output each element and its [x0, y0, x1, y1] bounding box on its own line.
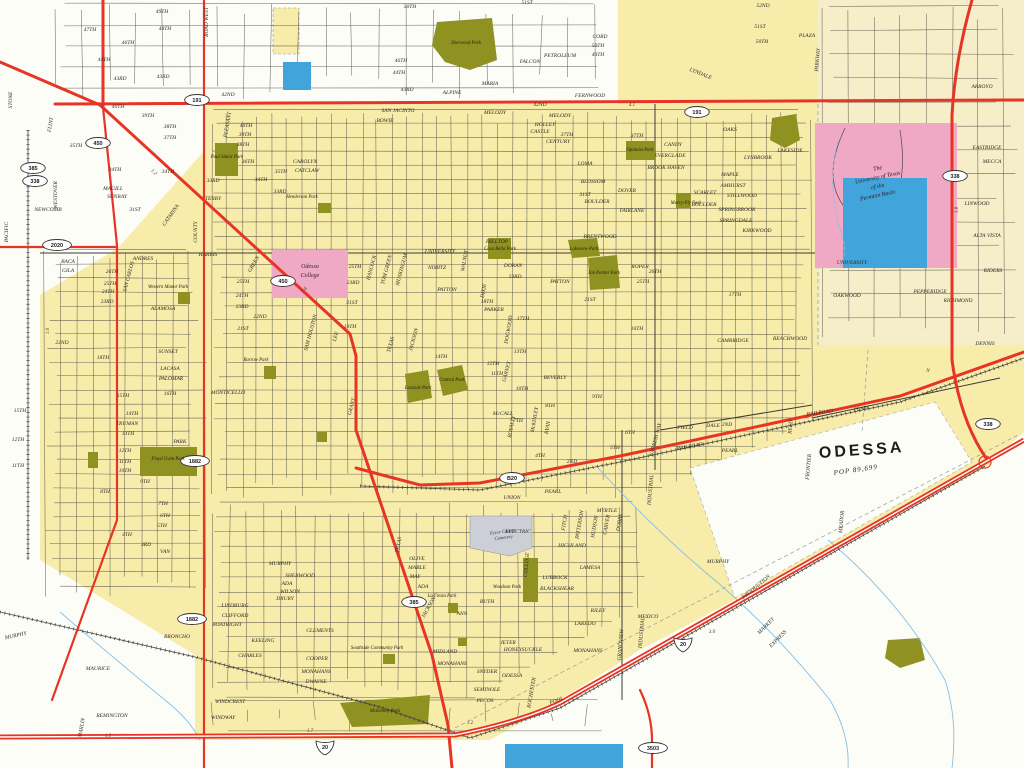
street-label: 6TH [625, 430, 636, 436]
western-manor-park-label: Western Manor Park [148, 285, 189, 290]
street-label: MELODY [483, 110, 507, 116]
street-label: 12TH [119, 448, 133, 454]
street-label: RUTH [479, 599, 495, 605]
street-label: 1.7 [307, 729, 314, 734]
street-label: SCARLET [694, 190, 718, 196]
street-label: 23RD [347, 280, 360, 286]
street-label: CENTURY [546, 139, 571, 145]
street-label: BLACKSHEAR [540, 586, 575, 592]
optimist-park-label: Optimist Park [626, 148, 654, 153]
street-label: 7TH [158, 501, 169, 507]
street-label: 25TH [349, 264, 363, 270]
park-small-1 [458, 638, 467, 646]
street-label: ROPER [630, 264, 649, 270]
street-label: 38TH [163, 124, 178, 130]
street-label: COUNTY [193, 220, 199, 242]
street-label: 17TH [517, 316, 531, 322]
street-label: 39TH [141, 113, 156, 119]
street-label: BACA [61, 259, 75, 265]
street-label: 25TH [237, 279, 251, 285]
street-label: MEXICO [637, 614, 659, 620]
street-label: MYRTLE [596, 508, 618, 514]
street-label: LAKESIDE [776, 148, 803, 154]
street-label: PATTON [436, 287, 457, 293]
street-label: 1.5 [105, 734, 112, 739]
street-label: WESTOVER [53, 181, 59, 209]
street-label: BEACHWOOD [773, 336, 807, 342]
street-label: 22ND [55, 340, 68, 346]
street-label: MURPHY [706, 559, 730, 565]
street-label: LACASA [159, 366, 180, 372]
street-label: 33RD [273, 189, 287, 195]
street-label: DORAN [503, 263, 523, 269]
street-label: 38TH [236, 142, 251, 148]
street-label: 5TH [157, 523, 168, 529]
street-label: 15TH [14, 408, 28, 414]
street-label: 2ND [567, 459, 577, 465]
street-label: MIDLAND [432, 649, 457, 655]
street-label: N [925, 369, 930, 374]
street-label: 50TH [404, 4, 418, 10]
street-label: 23RD [236, 304, 249, 310]
street-label: NIMITZ [427, 265, 447, 271]
street-label: LINWOOD [963, 201, 989, 207]
jim-parker-park-label: Jim Parker Park [588, 271, 621, 276]
route-shield-label-3503: 3503 [647, 746, 659, 752]
urban-patch-topleft [273, 8, 299, 54]
street-label: TRUMAN [116, 421, 138, 427]
street-label: 34TH [161, 168, 176, 175]
street-label: HOLLEY [534, 122, 556, 128]
street-label: ANN [456, 611, 468, 617]
street-label: RILEY [590, 608, 607, 614]
street-label: 39TH [238, 132, 253, 138]
route-shield-label-191: 191 [692, 110, 701, 116]
street-label: MONAHANS [572, 648, 603, 654]
street-label: PEARL [721, 448, 739, 454]
street-label: 21ST [237, 326, 249, 332]
street-label: RIDERS [983, 268, 1003, 274]
street-label: REMINGTON [95, 713, 128, 719]
street-label: 51ST [521, 0, 533, 6]
street-label: 23RD [101, 299, 114, 305]
street-label: DRURY [275, 596, 295, 602]
street-label: 48TH [159, 25, 173, 32]
street-label: GILA [62, 268, 75, 274]
street-label: DWAYNE [304, 679, 327, 685]
street-label: MAPLE [720, 172, 739, 178]
street-label: 26TH [106, 269, 120, 275]
street-label: VAN [160, 549, 170, 555]
street-label: 1.8 [955, 206, 960, 213]
street-label: LAREDO [573, 621, 595, 627]
street-label: DOVER [617, 188, 637, 194]
street-label: PLAZA [798, 33, 816, 39]
street-label: MURPHY [268, 561, 292, 567]
odessa-college-label-line: Odessa [301, 264, 319, 270]
urban-area-top [618, 0, 818, 104]
street-label: 11TH [12, 463, 25, 469]
odessa-college-label-line: College [301, 273, 320, 279]
street-label: BEVERLY [544, 375, 568, 381]
street-label: OAKWOOD [833, 293, 861, 299]
route-shield-label-450: 450 [278, 279, 287, 285]
street-label: 9TH [592, 394, 603, 400]
street-label: WINDCREST [215, 699, 246, 705]
street-label: 14TH [126, 410, 140, 417]
street-label: 10TH [516, 386, 530, 392]
street-label: CASTLE [530, 129, 550, 135]
street-label: 52ND [756, 3, 769, 9]
street-label: BOULDER [584, 199, 610, 205]
street-label: LAMESA [579, 565, 601, 571]
street-label: CAMBRIDGE [717, 338, 749, 344]
street-label: 35TH [69, 143, 84, 149]
street-label: SAN JACINTO [381, 108, 414, 114]
street-label: 46TH [122, 39, 136, 46]
street-label: MAY [409, 574, 422, 580]
street-label: ANDRES [132, 256, 154, 262]
street-label: CORD [593, 34, 608, 40]
lake-south [505, 744, 623, 768]
street-label: 13TH [514, 349, 528, 355]
street-label: 43RD [401, 86, 414, 93]
woodson-park-label: Woodson Park [493, 585, 522, 590]
route-shield-label-385: 385 [409, 600, 418, 606]
mckinney-park-label: McKinney Park [369, 709, 401, 714]
street-label: 50TH [592, 43, 606, 49]
route-shield-label-191: 191 [192, 98, 201, 104]
route-shield-label-338: 338 [983, 422, 992, 428]
street-label: 47TH [84, 26, 98, 33]
street-label: EASTRIDGE [971, 145, 1002, 151]
street-label: SUNRAY [107, 194, 128, 200]
street-label: CLIFFORD [222, 613, 249, 619]
street-label: BLOSSOM [581, 179, 606, 185]
street-label: 4TH [122, 531, 133, 538]
street-label: FERNWOOD [574, 93, 605, 99]
street-label: 31ST [578, 192, 591, 198]
street-label: PEARL [544, 489, 562, 495]
street-label: PARKER [483, 307, 504, 313]
street-label: 1.0 [46, 327, 51, 334]
park-small-3 [88, 452, 98, 468]
street-label: 25TH [637, 279, 651, 285]
street-label: MAURICE [85, 666, 111, 672]
street-label: BOATRIGHT [212, 622, 243, 628]
street-label: LOMA [577, 161, 594, 167]
street-label: CLEMENTS [306, 628, 334, 634]
street-label: 6TH [160, 513, 171, 519]
street-label: 44TH [98, 56, 112, 63]
street-label: 35TH [274, 169, 289, 175]
route-shield-label-20: 20 [680, 642, 686, 648]
street-label: JETER [500, 640, 516, 646]
route-shield-label-1882: 1882 [186, 617, 198, 623]
street-label: 12TH [487, 361, 501, 367]
street-label: ADA [417, 584, 429, 590]
street-label: RICHMOND [942, 298, 972, 304]
street-label: KIRKWOOD [741, 228, 771, 234]
street-label: 40TH [240, 122, 254, 129]
street-label: FALCON [519, 59, 541, 65]
street-label: SPRINGDALE [720, 218, 753, 224]
street-label: 43RD [157, 73, 170, 80]
street-label: 40TH [112, 103, 126, 110]
odessa-street-map: 191191450450385338338338202018821882385B… [0, 0, 1024, 768]
street-label: MONAHANS [436, 661, 467, 667]
map-canvas: 191191450450385338338338202018821882385B… [0, 0, 1024, 768]
street-label: 18TH [481, 299, 495, 305]
street-label: 23RD [509, 274, 522, 280]
street-label: 8TH [100, 489, 111, 495]
street-label: PARK [172, 439, 186, 445]
eastside-park-label: Eastside Park [404, 386, 433, 391]
street-label: BOWIE [376, 118, 394, 124]
sherwood-park-label: Sherwood Park [451, 41, 482, 46]
street-label: HILLTOP [485, 239, 509, 245]
street-label: PALOMAR [158, 376, 184, 382]
street-label: SUNSET [158, 349, 179, 355]
street-label: 34TH [108, 166, 123, 173]
route-shield-label-B20: B20 [507, 476, 517, 482]
street-label: ROAD WEST [204, 6, 210, 38]
southside-community-park-label: Southside Community Park [351, 646, 404, 651]
street-label: SEMINOLE [474, 687, 501, 693]
western-manor-park [178, 292, 190, 304]
street-label: 24TH [102, 288, 116, 295]
street-label: 50TH [756, 39, 770, 45]
route-shield-label-2020: 2020 [51, 243, 63, 249]
pond-northwest [283, 62, 311, 90]
route-shield-label-385: 385 [28, 166, 37, 172]
street-label: LYNBROOK [743, 155, 772, 161]
street-label: HARRIS [198, 252, 218, 258]
street-label: 19TH [344, 324, 358, 330]
street-label: PECOS [475, 698, 493, 704]
street-label: 2ND [722, 422, 732, 428]
street-label: 43RD [114, 75, 127, 82]
paul-slator-park-label: Paul Slator Park [210, 155, 244, 160]
street-label: 8TH [545, 403, 556, 409]
street-label: 10TH [119, 468, 133, 474]
street-label: 14TH [435, 353, 449, 360]
street-label: 25TH [104, 281, 118, 287]
street-label: 9TH [140, 479, 151, 485]
street-label: AMHURST [719, 183, 746, 189]
street-label: 37TH [630, 133, 645, 139]
street-label: CAROLYN [293, 159, 317, 165]
street-label: 51ST [754, 24, 766, 30]
street-label: COOPER [306, 656, 328, 662]
street-label: UNION [503, 495, 520, 501]
street-label: 1.2 [467, 721, 474, 726]
street-label: PACIFIC [4, 221, 10, 243]
street-label: DALE [705, 423, 720, 429]
lakeview-park-label: Lakeview Park [569, 247, 600, 252]
street-label: CHARLES [238, 653, 262, 659]
street-label: 4.1 [629, 103, 635, 108]
street-label: 31ST [128, 207, 141, 213]
street-label: 11TH [119, 459, 132, 465]
street-label: 17TH [729, 292, 743, 298]
barrow-park [264, 366, 276, 379]
street-label: CATCLAW [295, 168, 320, 174]
street-label: 15TH [117, 393, 131, 399]
street-label: BRENTWOOD [583, 234, 616, 240]
street-label: UNIVERSITY [837, 260, 868, 266]
route-shield-label-450: 450 [93, 141, 102, 147]
street-label: HIGHLAND [557, 543, 586, 549]
street-label: 46TH [395, 57, 409, 64]
street-label: UNIVERSITY [425, 249, 456, 255]
street-label: 37TH [560, 132, 575, 138]
route-shield-label-338: 338 [30, 179, 39, 185]
street-label: 16TH [164, 391, 178, 397]
street-label: 3RD [140, 542, 151, 548]
street-label: BRONCHO [164, 634, 190, 640]
street-label: BROOK HAVEN [647, 165, 684, 171]
route-shield-label-338: 338 [950, 174, 959, 180]
street-label: 18TH [97, 355, 111, 361]
street-label: KEELING [251, 638, 275, 644]
street-label: ODESSA [502, 673, 523, 679]
street-label: MONTICELLO [210, 390, 245, 396]
street-label: FAIRLANE [619, 208, 645, 214]
la-fiesta-park-label: La Fiesta Park [427, 594, 458, 599]
street-label: 24TH [236, 292, 250, 299]
street-label: OAKS [723, 127, 737, 133]
street-label: 3.0 [709, 630, 716, 635]
street-label: TERRY [205, 196, 222, 202]
central-park-label: Central Park [439, 378, 465, 383]
street-label: 21ST [584, 297, 596, 303]
street-label: 49TH [592, 51, 606, 58]
street-label: WINDWAY [211, 715, 236, 721]
street-label: EVERGLADE [653, 153, 686, 159]
street-label: ALPINE [442, 90, 462, 96]
street-label: MELODY [548, 113, 572, 119]
street-label: ADA [281, 581, 293, 587]
street-label: OLIVE [409, 556, 425, 562]
barrow-park-label: Barrow Park [243, 358, 269, 363]
southside-community-park [383, 654, 395, 664]
casa-bella-park-label: Casa Bella Park [484, 247, 517, 252]
street-label: WILSON [280, 589, 300, 595]
street-label: SNYDER [477, 669, 498, 675]
street-label: MAGILL [102, 186, 123, 192]
street-label: SPRINGBROOK [718, 207, 756, 213]
street-label: SHERWOOD [285, 573, 315, 579]
street-label: PATTON [549, 279, 570, 285]
street-label: MONAHANS [300, 669, 331, 675]
street-label: 22ND [253, 314, 266, 320]
street-label: 42ND [533, 101, 546, 108]
street-label: 26TH [649, 269, 663, 275]
route-shield-label-20: 20 [322, 745, 328, 751]
street-label: 37TH [163, 135, 178, 141]
street-label: FIELD [676, 425, 693, 431]
street-label: MABLE [407, 565, 426, 571]
street-label: 5TH [610, 445, 621, 451]
street-label: LUBBOCK [541, 575, 567, 581]
murry-fly-park-label: Murry-Fly Park [670, 201, 703, 206]
henderson-park-label: Henderson Park [285, 195, 318, 200]
floyd-gwin-park-label: Floyd Gwin Park [150, 457, 185, 462]
street-label: 16TH [631, 326, 645, 332]
park-small-2 [317, 432, 327, 442]
street-label: 49TH [156, 8, 170, 15]
street-label: DENNIS [974, 341, 995, 347]
street-label: ALAMOSA [150, 306, 176, 312]
street-label: STILLWOOD [727, 193, 757, 199]
street-label: ALTA VISTA [972, 233, 1001, 239]
street-label: CANDY [664, 142, 683, 148]
henderson-park [318, 203, 331, 213]
street-label: 34TH [254, 176, 269, 183]
street-label: STONE [8, 91, 14, 108]
street-label: 44TH [393, 69, 407, 76]
street-label: 33RD [206, 178, 220, 184]
street-label: MARIA [481, 81, 499, 87]
street-label: ARROYO [970, 84, 992, 90]
street-label: PETROLEUM [543, 53, 577, 59]
street-label: LINDBURG [220, 603, 248, 609]
street-label: 4TH [535, 452, 546, 459]
street-label: MECCA [982, 159, 1002, 165]
street-label: 42ND [221, 91, 234, 98]
route-shield-label-1882: 1882 [189, 459, 201, 465]
street-label: 21ST [346, 300, 358, 306]
street-label: PEPPERIDGE [912, 289, 947, 295]
street-label: HONEYSUCKLE [503, 647, 543, 653]
street-label: 12TH [12, 437, 26, 443]
street-label: 13TH [122, 431, 136, 437]
